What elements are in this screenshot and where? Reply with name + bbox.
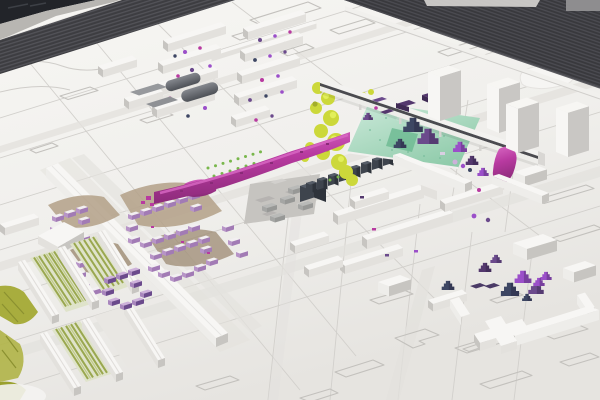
tower — [428, 66, 461, 122]
distant-building — [566, 0, 600, 11]
tiny-car[interactable] — [385, 254, 389, 257]
tiny-car[interactable] — [414, 250, 418, 253]
tiny-car[interactable] — [372, 228, 376, 231]
model-photo — [0, 0, 600, 400]
tower — [556, 102, 589, 158]
model-photo-canvas — [0, 0, 600, 400]
tower — [506, 98, 539, 154]
tiny-car[interactable] — [360, 196, 364, 199]
tiny-car[interactable] — [440, 152, 445, 155]
far-platform-strip — [424, 0, 540, 7]
